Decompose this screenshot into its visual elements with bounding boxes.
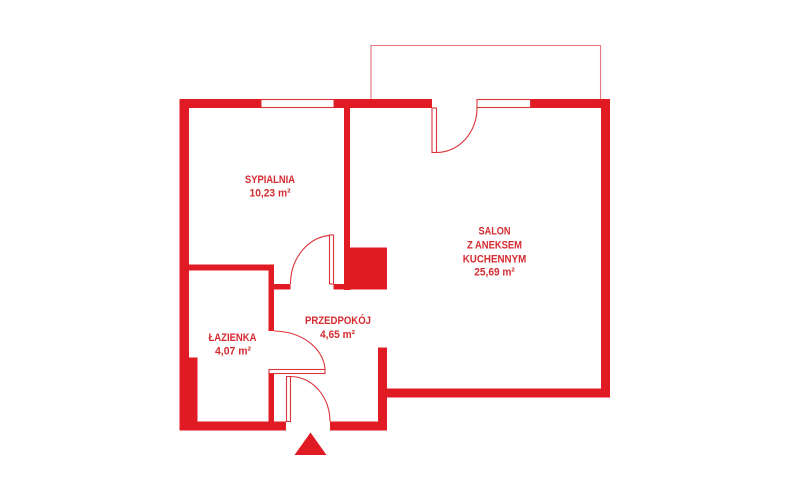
svg-text:10,23 m²: 10,23 m² (250, 188, 291, 200)
svg-text:4,07 m²: 4,07 m² (215, 346, 251, 358)
svg-text:ŁAZIENKA: ŁAZIENKA (209, 332, 257, 344)
svg-text:KUCHENNYM: KUCHENNYM (463, 254, 527, 266)
svg-text:SALON: SALON (479, 226, 511, 238)
svg-text:Z ANEKSEM: Z ANEKSEM (467, 240, 522, 252)
svg-text:SYPIALNIA: SYPIALNIA (245, 174, 295, 186)
svg-text:4,65 m²: 4,65 m² (320, 329, 355, 341)
svg-text:PRZEDPOKÓJ: PRZEDPOKÓJ (305, 314, 371, 327)
svg-text:25,69 m²: 25,69 m² (474, 266, 515, 278)
